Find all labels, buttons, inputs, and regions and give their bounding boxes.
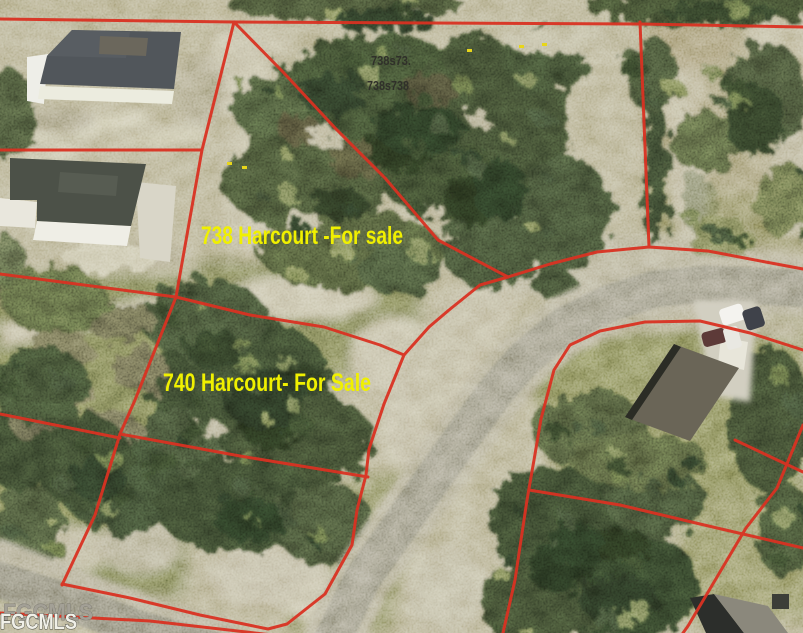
svg-text:738s738: 738s738 (367, 78, 409, 93)
svg-text:FGCMLS: FGCMLS (0, 609, 77, 633)
svg-text:740 Harcourt- For Sale: 740 Harcourt- For Sale (163, 369, 371, 397)
svg-text:738s73.: 738s73. (371, 53, 411, 68)
svg-text:738 Harcourt -For sale: 738 Harcourt -For sale (201, 222, 403, 250)
